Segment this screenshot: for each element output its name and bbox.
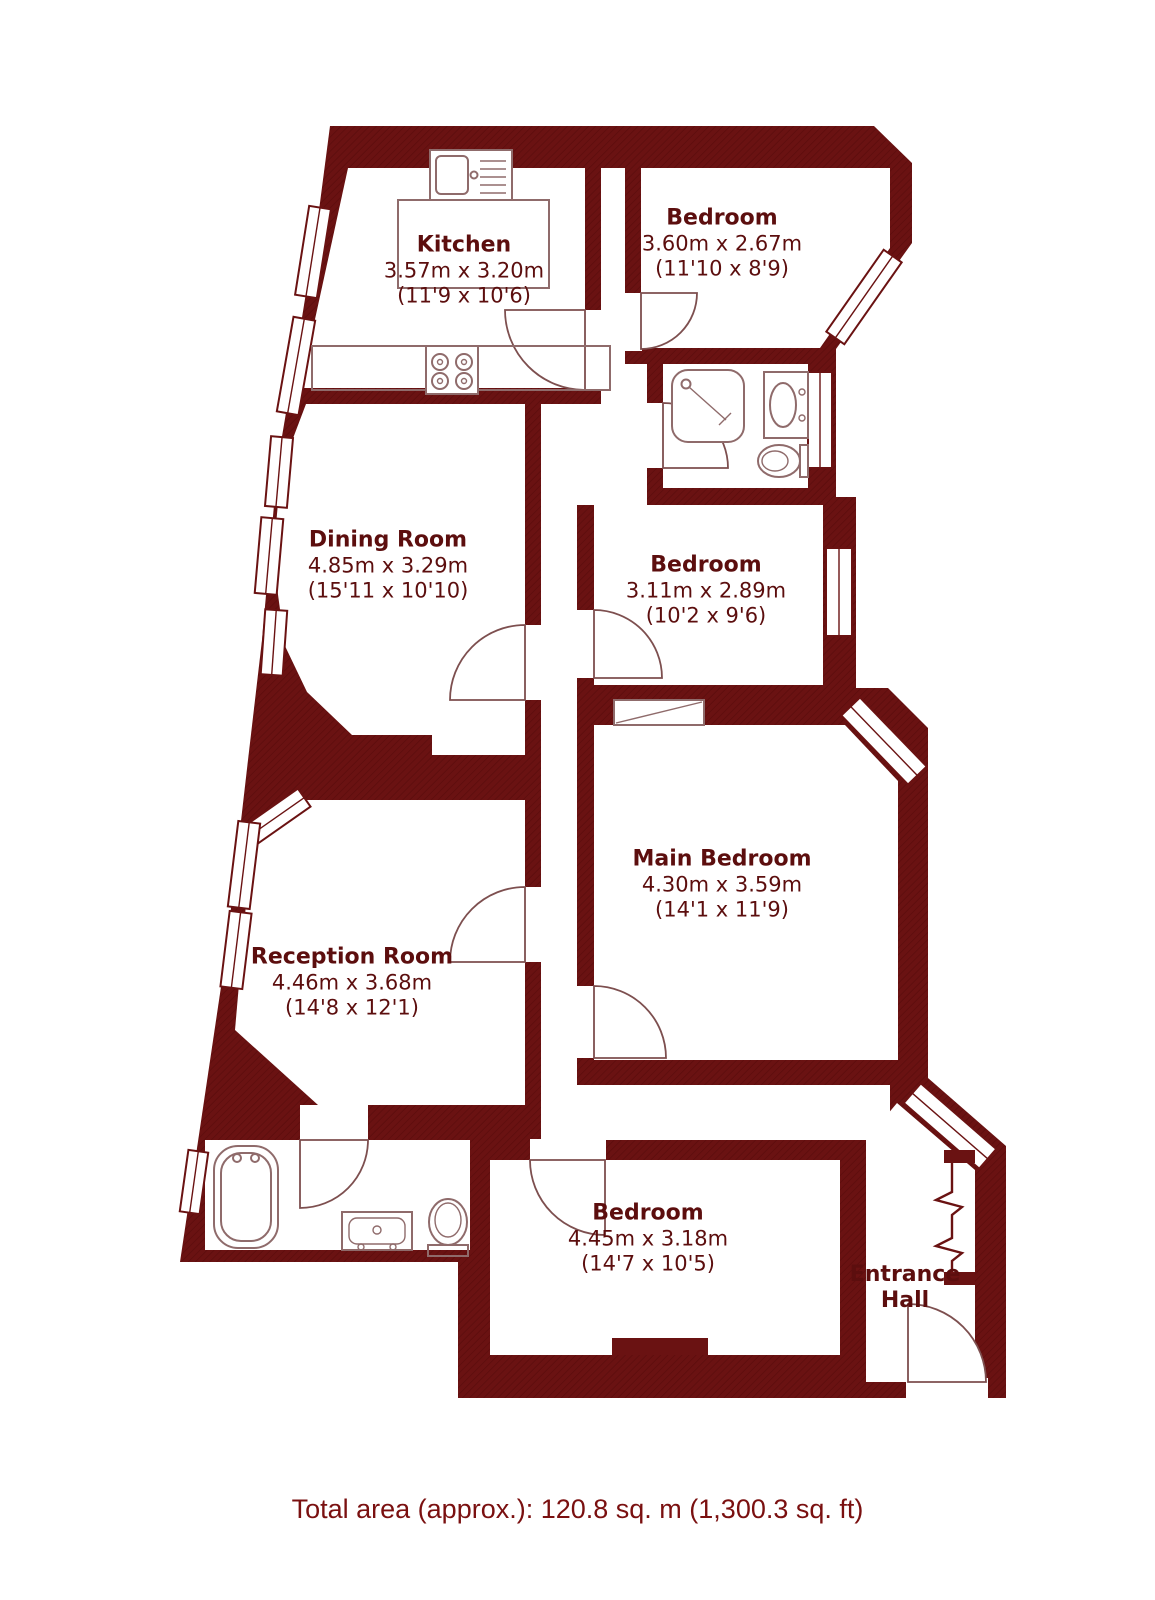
room-imperial-dims: (11'10 x 8'9) [642, 256, 802, 281]
chimney-step [612, 1338, 708, 1355]
room-metric-dims: 4.85m x 3.29m [308, 553, 469, 578]
floorplan-canvas [0, 0, 1155, 1600]
room-label-reception-room: Reception Room 4.46m x 3.68m (14'8 x 12'… [251, 944, 453, 1019]
room-label-kitchen: Kitchen 3.57m x 3.20m (11'9 x 10'6) [384, 232, 544, 307]
total-area-text: Total area (approx.): 120.8 sq. m (1,300… [0, 1494, 1155, 1525]
room-imperial-dims: (10'2 x 9'6) [626, 603, 786, 628]
room-label-main-bedroom: Main Bedroom 4.30m x 3.59m (14'1 x 11'9) [632, 846, 811, 921]
room-metric-dims: 3.11m x 2.89m [626, 578, 786, 603]
room-metric-dims: 4.45m x 3.18m [568, 1226, 728, 1251]
room-name: Dining Room [308, 527, 469, 553]
room-imperial-dims: (14'7 x 10'5) [568, 1251, 728, 1276]
hallway-corridor-floor [541, 404, 577, 1140]
kitchen-sink-icon [430, 150, 512, 200]
hall-upper-floor [601, 364, 647, 409]
room-label-dining-room: Dining Room 4.85m x 3.29m (15'11 x 10'10… [308, 527, 469, 602]
room-metric-dims: 4.30m x 3.59m [632, 872, 811, 897]
floorplan: Kitchen 3.57m x 3.20m (11'9 x 10'6) Bedr… [0, 0, 1155, 1600]
hall-passage-floor [577, 1085, 890, 1140]
room-label-entrance-hall: Entrance Hall [835, 1262, 975, 1314]
window-icon [265, 436, 293, 508]
room-name: Bedroom [642, 205, 802, 231]
hall-stub-floor [601, 168, 625, 368]
window-icon [826, 548, 852, 636]
hob-icon [426, 346, 478, 394]
room-name: Entrance Hall [835, 1262, 975, 1314]
room-name: Reception Room [251, 944, 453, 970]
room-imperial-dims: (14'8 x 12'1) [251, 995, 453, 1020]
room-name: Main Bedroom [632, 846, 811, 872]
shower-icon [672, 370, 744, 442]
room-label-bedroom-top: Bedroom 3.60m x 2.67m (11'10 x 8'9) [642, 205, 802, 280]
room-label-bedroom-middle: Bedroom 3.11m x 2.89m (10'2 x 9'6) [626, 552, 786, 627]
room-name: Bedroom [626, 552, 786, 578]
room-metric-dims: 3.57m x 3.20m [384, 258, 544, 283]
room-imperial-dims: (11'9 x 10'6) [384, 283, 544, 308]
room-metric-dims: 4.46m x 3.68m [251, 970, 453, 995]
room-name: Bedroom [568, 1200, 728, 1226]
room-imperial-dims: (15'11 x 10'10) [308, 578, 469, 603]
room-label-bedroom-bottom: Bedroom 4.45m x 3.18m (14'7 x 10'5) [568, 1200, 728, 1275]
room-name: Kitchen [384, 232, 544, 258]
room-metric-dims: 3.60m x 2.67m [642, 231, 802, 256]
window-icon [261, 609, 287, 675]
bathtub-icon [214, 1146, 278, 1248]
room-imperial-dims: (14'1 x 11'9) [632, 897, 811, 922]
wall-step-notch [614, 700, 704, 725]
window-icon [808, 372, 832, 468]
